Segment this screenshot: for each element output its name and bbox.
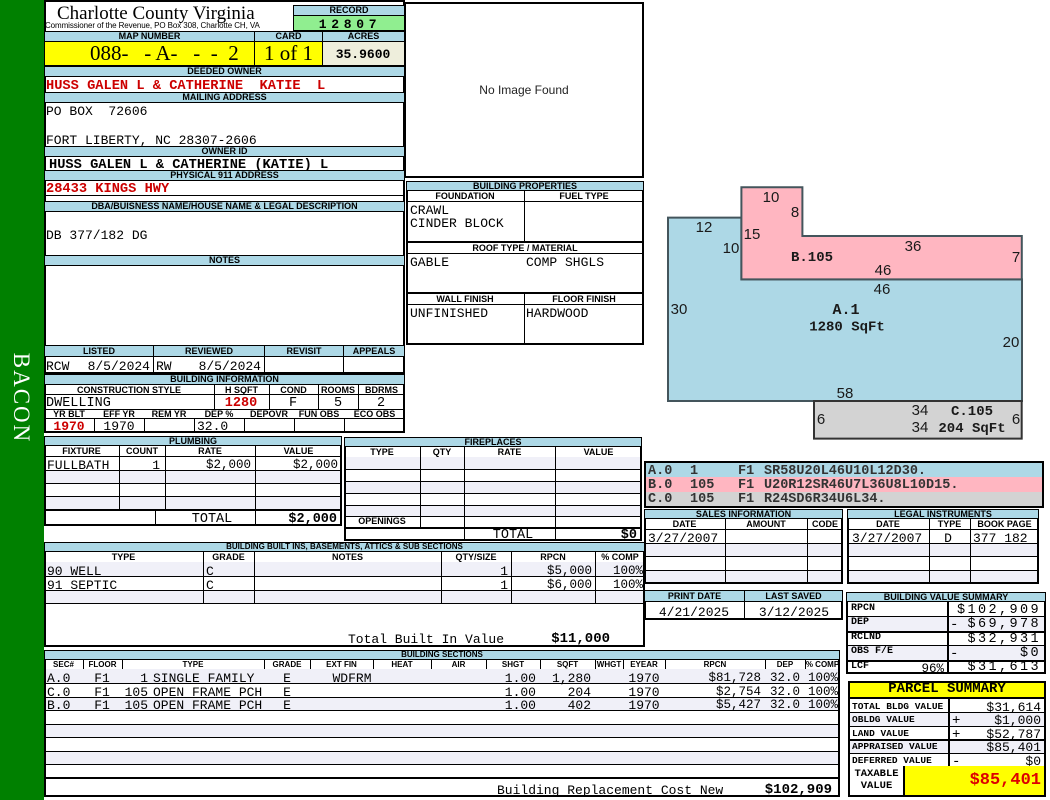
svg-text:8: 8 [791,204,799,221]
svg-text:36: 36 [905,238,922,255]
svg-text:7: 7 [1012,249,1020,266]
svg-text:34: 34 [912,402,929,419]
svg-text:A.1: A.1 [832,302,859,319]
svg-text:15: 15 [744,226,761,243]
svg-text:10: 10 [763,189,780,206]
svg-text:20: 20 [1003,334,1020,351]
svg-text:B.105: B.105 [791,250,833,266]
svg-text:30: 30 [671,301,688,318]
svg-text:58: 58 [837,385,854,402]
svg-text:46: 46 [874,281,891,298]
svg-text:12: 12 [696,219,713,236]
svg-text:204 SqFt: 204 SqFt [938,421,1005,437]
svg-text:C.105: C.105 [951,404,993,420]
svg-text:34: 34 [912,419,929,436]
svg-text:6: 6 [1012,411,1020,428]
svg-text:46: 46 [875,262,892,279]
svg-text:10: 10 [723,240,740,257]
svg-text:1280 SqFt: 1280 SqFt [809,320,885,336]
svg-text:6: 6 [817,411,825,428]
